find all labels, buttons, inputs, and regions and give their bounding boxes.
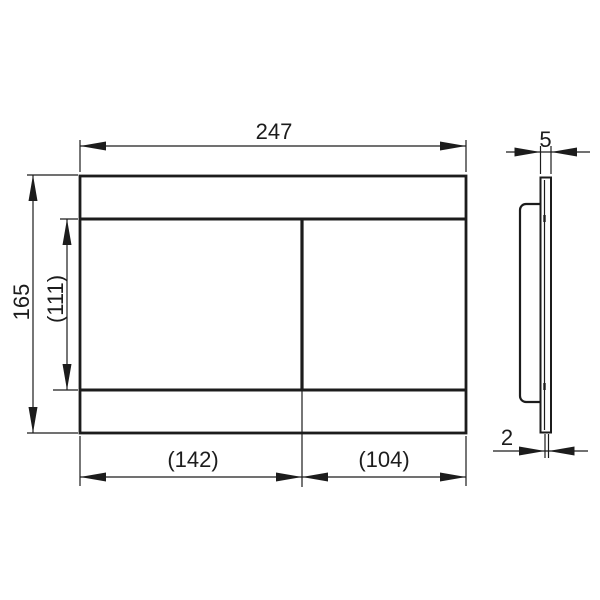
dimension-label-bottom-thickness: 2 [501, 425, 513, 450]
arrowhead-left [515, 148, 541, 157]
arrowhead-right [551, 148, 577, 157]
arrowhead-left [80, 473, 106, 482]
arrowhead-bottom [29, 407, 38, 433]
dimension-label-left-button-width: (142) [167, 447, 218, 472]
dim-right-button-width: (104) [302, 447, 466, 482]
dim-bottom-widths: (142) (104) [80, 436, 466, 486]
dimension-label-overall-width: 247 [256, 119, 293, 144]
dim-top-thickness: 5 [506, 127, 590, 174]
arrowhead-right [549, 447, 575, 456]
arrowhead-left [519, 447, 545, 456]
technical-drawing-page: 247 165 (111) [0, 0, 600, 600]
arrowhead-right [440, 142, 466, 151]
front-view [80, 176, 466, 487]
arrowhead-right [440, 473, 466, 482]
plate-profile [541, 178, 552, 433]
dimension-label-overall-height: 165 [9, 284, 34, 321]
dimension-label-right-button-width: (104) [358, 447, 409, 472]
dim-left-button-width: (142) [80, 447, 302, 482]
plate-outline [80, 176, 466, 433]
arrowhead-left [302, 473, 328, 482]
arrowhead-right [276, 473, 302, 482]
arrowhead-left [80, 142, 106, 151]
side-view [520, 178, 551, 433]
flush-plate-technical-drawing: 247 165 (111) [0, 0, 600, 600]
arrowhead-top [29, 175, 38, 201]
dim-button-area-height: (111) [43, 219, 78, 390]
arrowhead-bottom [63, 364, 72, 390]
dim-overall-width: 247 [80, 119, 466, 172]
dimension-label-top-thickness: 5 [539, 127, 551, 152]
arrowhead-top [63, 219, 72, 245]
dimension-label-button-area-height: (111) [43, 275, 68, 323]
